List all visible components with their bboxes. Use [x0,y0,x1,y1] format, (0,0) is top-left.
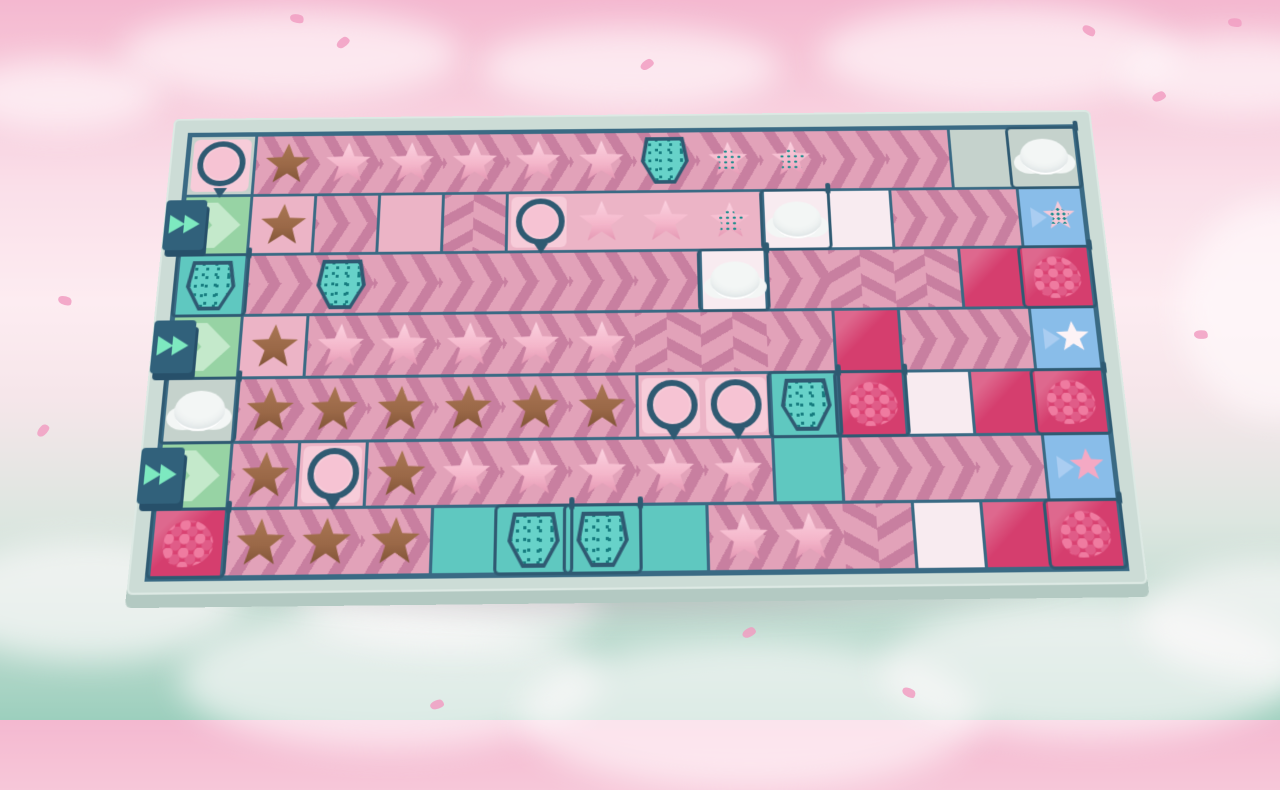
cookie-star-brown[interactable] [443,385,493,432]
tile-r1c1-gray[interactable] [187,137,255,195]
tile-r2c6-pink[interactable] [505,191,570,251]
cookie-star-sprinkle[interactable] [770,141,812,177]
cloud-blob [1140,560,1280,680]
tile-r1c10-belt-r[interactable] [758,131,824,189]
cookie-star-brown[interactable] [375,450,427,498]
tile-r7c2-belt-r[interactable] [220,506,294,575]
tile-r2c11-white[interactable] [825,188,893,248]
tile-r2c4-pink[interactable] [375,192,442,252]
fast-forward-input-block[interactable] [150,320,197,373]
petal-icon [1151,90,1167,102]
tile-r3c2-belt-r[interactable] [241,253,311,314]
tile-r7c14-magenta[interactable] [1047,498,1123,567]
cookie-star-brown[interactable] [238,451,291,499]
cloud-blob [1180,200,1280,420]
cookie-star-pink[interactable] [713,447,764,495]
press-funnel [213,188,227,198]
tile-r5c3-belt-r[interactable] [298,375,369,440]
petal-icon [35,423,52,439]
tile-r5c6-belt-r[interactable] [501,373,569,438]
tile-r7c5-teal[interactable] [429,504,500,573]
tile-r5c12-white[interactable] [901,369,973,434]
tile-r4c13-belt-r[interactable] [962,306,1034,369]
cookie-star-pink[interactable] [509,449,559,497]
tile-r7c7-teal[interactable] [568,503,638,572]
tile-r6c11-belt-r[interactable] [838,434,910,501]
tile-r5c1-gray[interactable] [163,376,236,441]
tile-r7c12-white[interactable] [911,499,985,568]
tile-r3c5-belt-r[interactable] [438,251,505,312]
tile-r1c3-belt-r[interactable] [315,135,382,193]
tile-r7c10-belt-r[interactable] [774,501,846,570]
petal-icon [429,699,444,710]
tile-r4c8-belt-d[interactable] [635,309,702,372]
cookie-star-pink[interactable] [512,321,561,366]
petal-icon [1227,16,1243,28]
tile-r6c5-belt-r[interactable] [431,438,501,505]
tile-r4c9-belt-d[interactable] [700,309,768,372]
tile-r1c6-belt-r[interactable] [506,134,570,192]
tile-r5c5-belt-r[interactable] [434,374,503,439]
tile-r2c10-white[interactable] [761,188,828,248]
tile-r7c3-belt-r[interactable] [290,506,363,575]
cookie-star-brown[interactable] [510,384,559,431]
tile-r1c5-belt-r[interactable] [442,134,507,192]
press-funnel [325,499,340,511]
tile-r7c1-magenta[interactable] [150,507,225,576]
cookie-star-pink[interactable] [451,141,498,183]
cookie-star-pink[interactable] [324,143,372,185]
cookie-star-pink[interactable] [578,448,628,496]
petal-icon [335,35,352,50]
cookie-star-brown[interactable] [308,386,359,433]
goal-arrow-icon [1056,456,1075,479]
tile-r1c4-belt-r[interactable] [378,135,444,193]
tile-r3c1-teal[interactable] [175,253,246,314]
tile-r4c6-belt-r[interactable] [502,311,569,374]
tile-r7c8-teal[interactable] [637,502,707,571]
tile-r4c14-blue[interactable] [1028,305,1101,368]
tile-r1c12-belt-r[interactable] [884,130,952,188]
tile-r2c14-blue[interactable] [1015,186,1086,245]
tile-r6c12-belt-r[interactable] [906,433,979,500]
petal-icon [639,57,655,71]
tile-r6c10-teal[interactable] [771,435,842,502]
tile-r1c11-belt-r[interactable] [821,131,888,189]
cookie-star-sprinkle[interactable] [709,202,751,239]
cloud-blob [180,610,600,750]
cookie-star-pink[interactable] [315,323,366,368]
tile-r4c1-green[interactable] [169,314,241,377]
tile-r5c4-belt-r[interactable] [366,374,436,439]
cookie-star-brown[interactable] [233,518,287,568]
cookie-star-brown[interactable] [375,385,426,432]
tile-r5c2-belt-r[interactable] [231,376,303,441]
board-frame [126,110,1148,595]
cookie-star-brown[interactable] [249,324,300,369]
tile-r6c14-blue[interactable] [1041,432,1116,499]
tile-r1c7-belt-r[interactable] [570,133,634,191]
cookie-star-brown[interactable] [300,517,353,567]
cloud-blob [0,60,160,130]
tile-r2c12-belt-r[interactable] [888,187,957,247]
cloud-blob [1120,35,1280,115]
press-funnel [534,244,548,254]
tile-r6c13-belt-r[interactable] [973,432,1047,499]
tile-r4c11-magenta[interactable] [831,307,901,370]
cookie-star-brown[interactable] [369,517,421,567]
tile-r2c7-pink[interactable] [569,190,634,250]
tile-r4c10-belt-r[interactable] [766,308,835,371]
tile-r2c2-pink[interactable] [246,193,315,253]
tile-r6c2-belt-r[interactable] [225,440,298,507]
cookie-star-sprinkle[interactable] [707,142,748,178]
game-screen: { "scene": { "description": "Top-down co… [0,0,1280,720]
tile-r6c6-belt-r[interactable] [500,437,569,504]
cookie-star-pink[interactable] [387,142,435,184]
goal-arrow-icon [1043,328,1061,350]
cookie-star-pink[interactable] [578,200,625,243]
tile-r3c12-belt-d[interactable] [892,246,962,307]
cookie-star-brown[interactable] [263,143,312,185]
tile-r4c12-belt-r[interactable] [897,307,968,370]
tile-r4c7-belt-r[interactable] [569,310,636,373]
tile-r6c4-belt-r[interactable] [363,439,434,506]
tile-r3c14-magenta[interactable] [1021,245,1093,306]
tile-r3c3-belt-r[interactable] [307,252,376,313]
tile-r6c9-belt-r[interactable] [704,435,774,502]
press-funnel [667,429,682,440]
goal-arrow-icon [1030,207,1048,227]
tile-r5c8-pink[interactable] [635,372,703,437]
tile-r2c3-belt-r[interactable] [311,193,379,253]
fast-forward-input-block[interactable] [136,447,185,503]
tile-r7c11-belt-u[interactable] [842,500,915,569]
tile-r1c2-belt-r[interactable] [251,136,319,194]
tile-r3c4-belt-r[interactable] [372,251,440,312]
cookie-star-pink[interactable] [441,449,492,497]
tile-r4c3-belt-r[interactable] [303,313,373,376]
puzzle-board [126,110,1148,595]
tile-r1c9-belt-r[interactable] [696,132,761,190]
tile-r5c7-belt-r[interactable] [569,372,636,437]
tile-r4c5-belt-r[interactable] [436,311,504,374]
tile-r7c9-belt-r[interactable] [705,501,776,570]
tile-r2c8-pink[interactable] [633,190,698,250]
tile-r7c6-teal[interactable] [498,504,568,573]
tile-r6c8-belt-r[interactable] [636,436,705,503]
cookie-star-brown[interactable] [258,204,308,247]
tile-r3c9-white[interactable] [699,248,766,309]
tile-r3c6-belt-r[interactable] [504,250,570,311]
tile-r4c2-pink[interactable] [236,313,307,376]
tile-r5c11-magenta[interactable] [835,370,906,435]
tile-r2c9-pink[interactable] [697,189,763,249]
cookie-star-pink[interactable] [645,447,695,495]
petal-icon [1081,23,1098,39]
tile-r2c1-green[interactable] [181,194,251,254]
cookie-star-pink[interactable] [718,513,770,563]
cookie-star-brown[interactable] [244,387,296,434]
press-funnel [731,428,746,439]
cookie-star-pink[interactable] [642,200,689,243]
cloud-blob [480,28,780,108]
cookie-star-pink[interactable] [445,322,494,367]
tile-r1c8-belt-r[interactable] [633,132,697,190]
board-grid [144,124,1129,581]
tile-r4c4-belt-r[interactable] [369,312,438,375]
cloud-blob [120,10,460,100]
tile-r5c9-pink[interactable] [702,371,771,436]
petal-icon [1193,329,1208,340]
tile-r7c4-belt-r[interactable] [359,505,431,574]
tile-r6c3-pink[interactable] [294,439,366,506]
petal-icon [289,12,305,25]
tile-r2c13-belt-r[interactable] [952,187,1022,247]
cookie-star-pink[interactable] [578,140,624,182]
tile-r5c14-magenta[interactable] [1034,368,1108,433]
tile-r6c7-belt-r[interactable] [568,437,637,504]
cookie-star-pink[interactable] [379,323,429,368]
cookie-star-pink[interactable] [578,321,626,366]
cookie-star-pink[interactable] [784,512,837,562]
tile-r3c7-belt-r[interactable] [569,249,635,310]
cookie-star-brown[interactable] [578,383,627,430]
tile-r5c10-teal[interactable] [768,370,838,435]
tile-r3c10-belt-r[interactable] [763,247,831,308]
tile-r6c1-green[interactable] [157,441,231,508]
petal-icon [57,293,73,307]
tile-r3c11-belt-d[interactable] [828,247,897,308]
cloud-blob [520,640,980,790]
cloud-blob [820,5,1180,105]
tile-r2c5-belt-d[interactable] [440,192,506,252]
petal-icon [901,685,918,700]
fast-forward-input-block[interactable] [162,200,208,250]
tile-r3c8-belt-r[interactable] [634,249,700,310]
tile-r1c14-gray[interactable] [1010,129,1079,187]
cookie-star-pink[interactable] [515,141,562,183]
